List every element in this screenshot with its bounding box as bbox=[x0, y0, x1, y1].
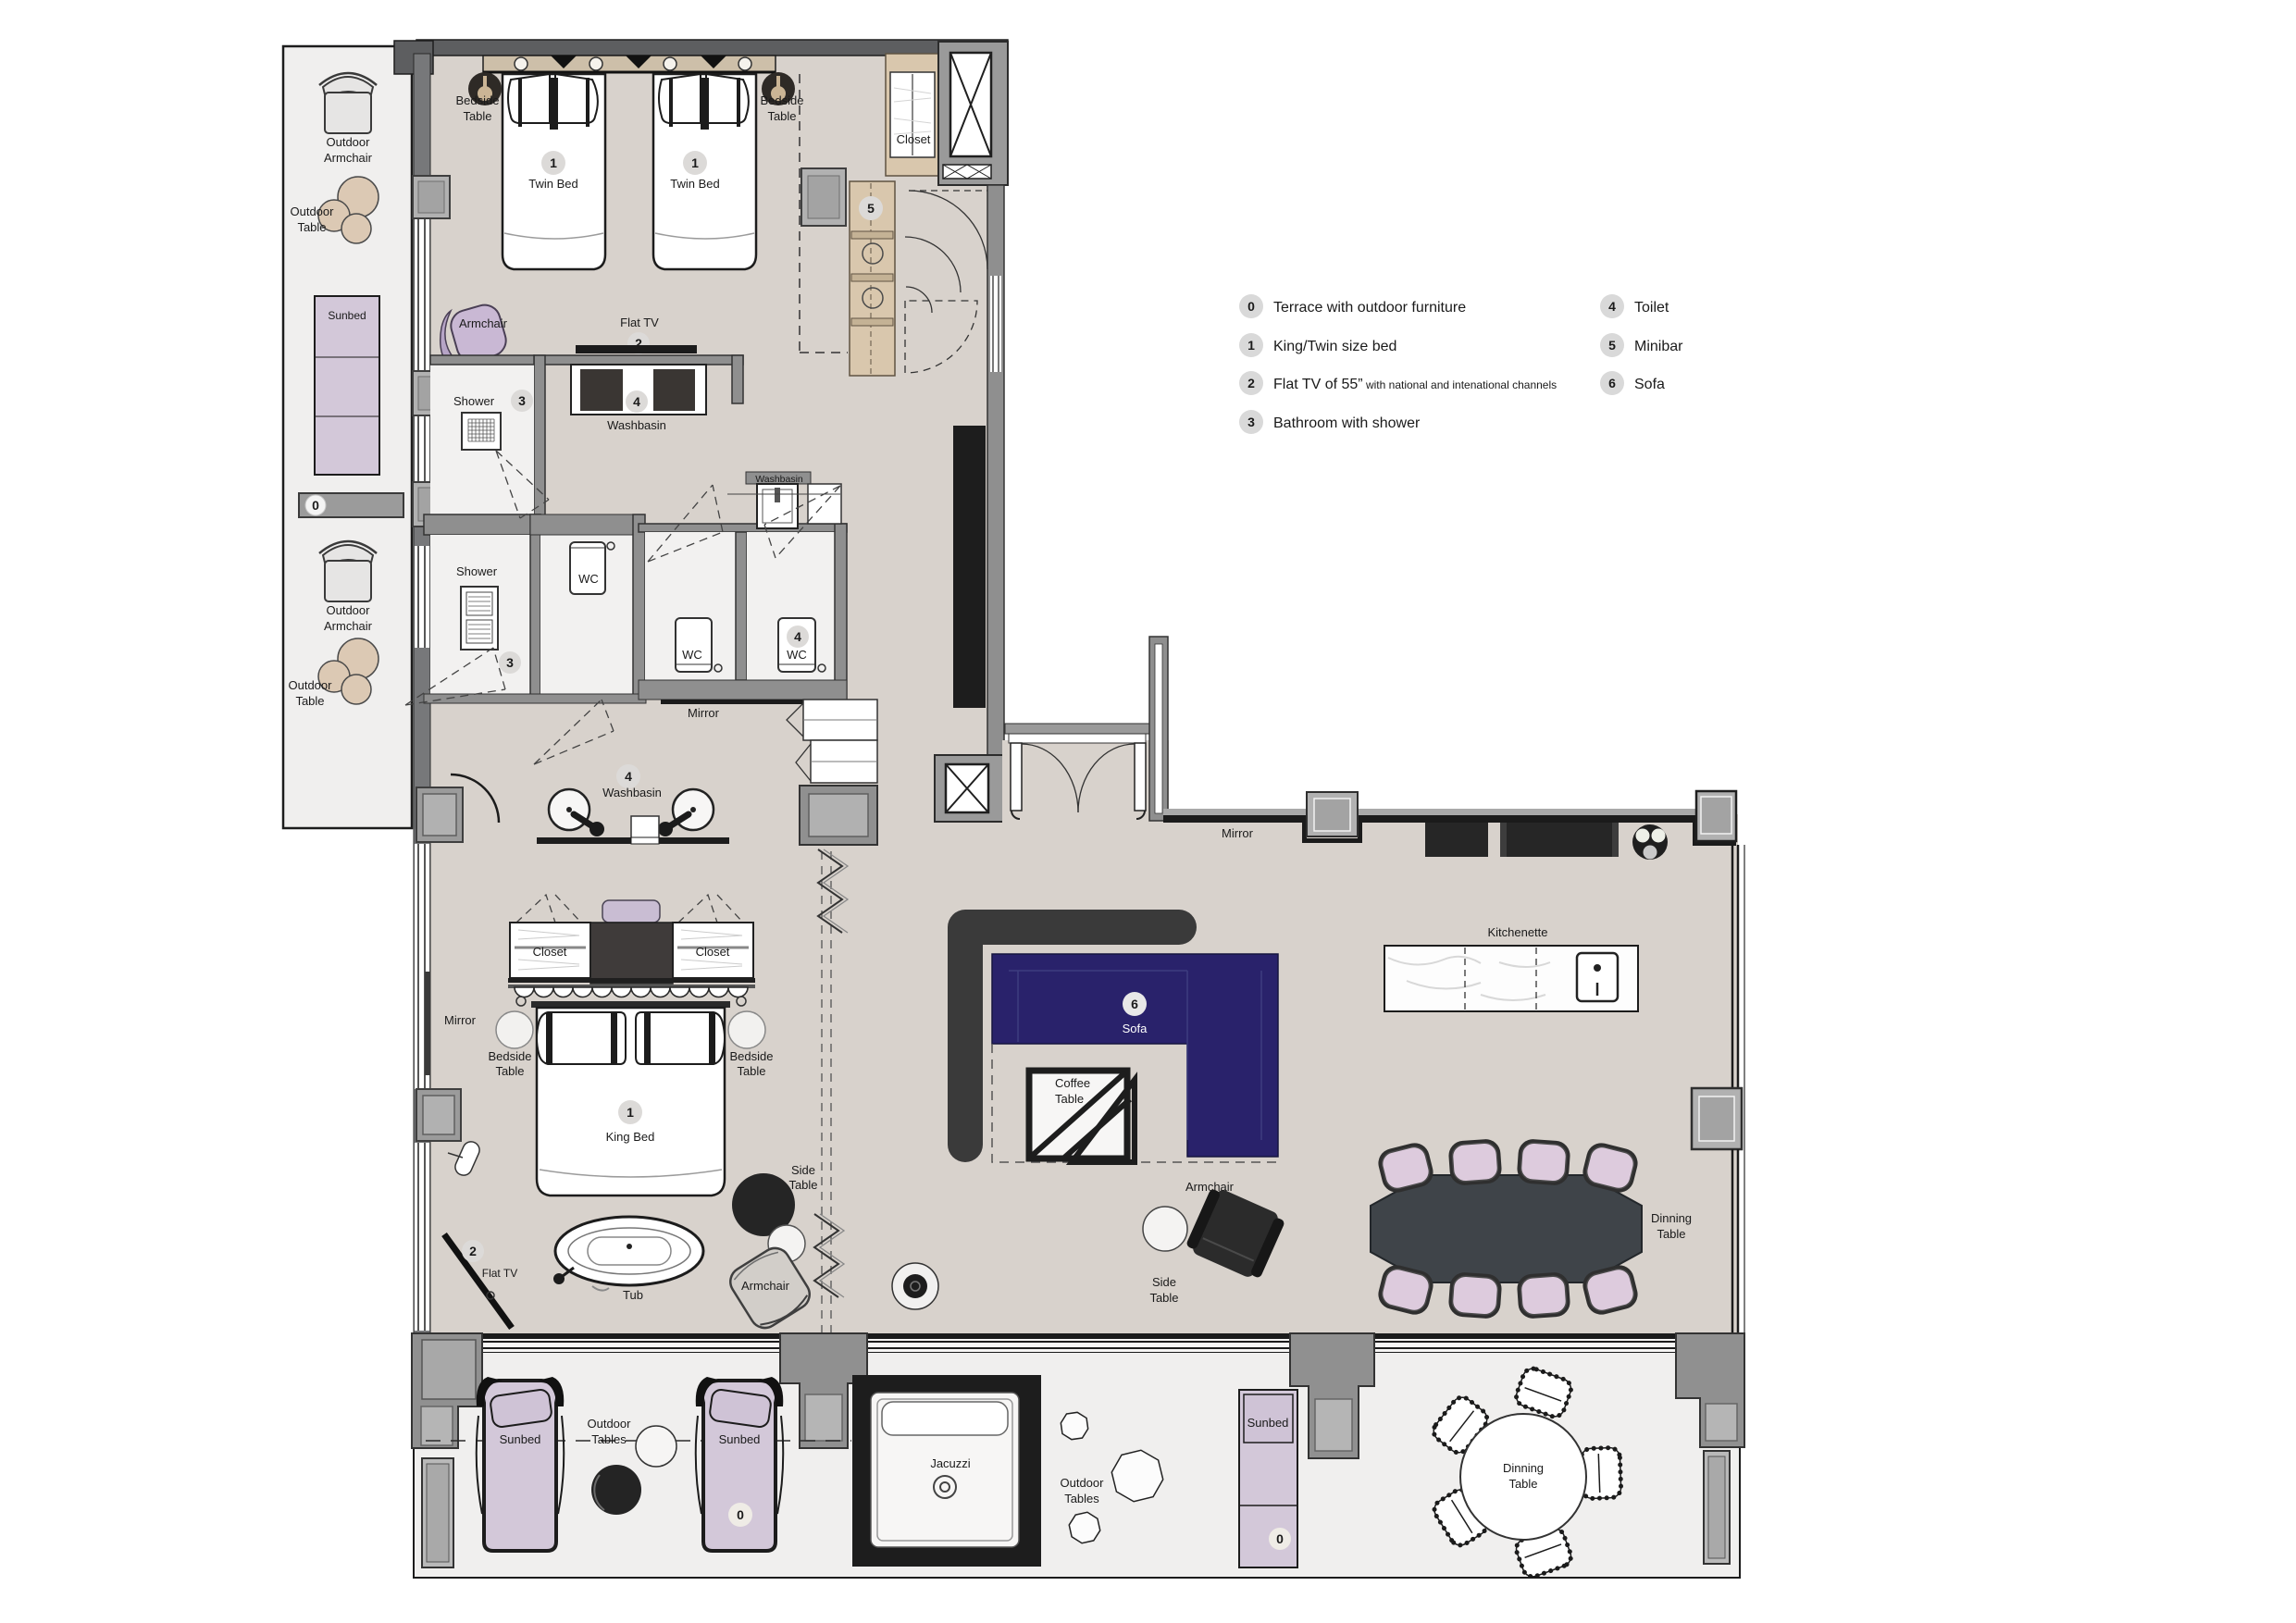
svg-text:Side: Side bbox=[1152, 1275, 1176, 1289]
svg-text:Shower: Shower bbox=[456, 564, 498, 578]
svg-text:Table: Table bbox=[1149, 1291, 1178, 1305]
svg-text:4: 4 bbox=[633, 394, 640, 409]
svg-text:Sunbed: Sunbed bbox=[328, 309, 366, 322]
svg-text:Washbasin: Washbasin bbox=[755, 474, 803, 485]
svg-text:Coffee: Coffee bbox=[1055, 1076, 1090, 1090]
svg-text:WC: WC bbox=[787, 648, 807, 662]
svg-text:Washbasin: Washbasin bbox=[602, 786, 662, 799]
svg-text:Mirror: Mirror bbox=[1222, 826, 1254, 840]
svg-text:4: 4 bbox=[1608, 299, 1616, 314]
svg-text:Twin Bed: Twin Bed bbox=[528, 177, 577, 191]
svg-text:1: 1 bbox=[691, 155, 699, 170]
svg-text:Mirror: Mirror bbox=[688, 706, 720, 720]
svg-text:1: 1 bbox=[1247, 338, 1255, 353]
svg-text:1: 1 bbox=[627, 1105, 634, 1120]
svg-text:Table: Table bbox=[737, 1064, 765, 1078]
svg-text:Tables: Tables bbox=[1064, 1492, 1099, 1505]
svg-text:Armchair: Armchair bbox=[741, 1279, 790, 1293]
svg-text:Terrace with outdoor furniture: Terrace with outdoor furniture bbox=[1273, 300, 1466, 316]
svg-text:Washbasin: Washbasin bbox=[607, 418, 666, 432]
svg-text:Outdoor: Outdoor bbox=[327, 603, 371, 617]
svg-text:Sofa: Sofa bbox=[1123, 1022, 1148, 1035]
svg-text:0: 0 bbox=[1247, 299, 1255, 314]
svg-text:Jacuzzi: Jacuzzi bbox=[930, 1456, 970, 1470]
svg-text:Table: Table bbox=[463, 109, 491, 123]
svg-text:Sunbed: Sunbed bbox=[1247, 1416, 1289, 1430]
svg-text:Bedside: Bedside bbox=[730, 1049, 774, 1063]
svg-text:Outdoor: Outdoor bbox=[588, 1417, 632, 1431]
svg-text:Tub: Tub bbox=[623, 1288, 643, 1302]
svg-text:4: 4 bbox=[625, 769, 632, 784]
svg-text:3: 3 bbox=[518, 393, 526, 408]
svg-text:Closet: Closet bbox=[533, 945, 567, 959]
svg-text:WC: WC bbox=[578, 572, 599, 586]
svg-text:0: 0 bbox=[312, 498, 319, 513]
svg-text:Armchair: Armchair bbox=[324, 619, 373, 633]
svg-text:Toilet: Toilet bbox=[1634, 300, 1669, 316]
svg-text:Sunbed: Sunbed bbox=[500, 1432, 541, 1446]
svg-text:Sunbed: Sunbed bbox=[719, 1432, 761, 1446]
svg-text:Table: Table bbox=[1657, 1227, 1685, 1241]
svg-text:6: 6 bbox=[1131, 997, 1138, 1011]
svg-text:0: 0 bbox=[737, 1507, 744, 1522]
svg-text:Minibar: Minibar bbox=[1634, 339, 1683, 354]
svg-text:Mirror: Mirror bbox=[444, 1013, 477, 1027]
svg-text:Flat TV: Flat TV bbox=[482, 1267, 517, 1280]
svg-text:Kitchenette: Kitchenette bbox=[1487, 925, 1547, 939]
svg-text:Table: Table bbox=[788, 1178, 817, 1192]
svg-text:4: 4 bbox=[794, 629, 801, 644]
svg-text:Outdoor: Outdoor bbox=[289, 678, 333, 692]
svg-text:Bedside: Bedside bbox=[456, 93, 500, 107]
svg-text:0: 0 bbox=[1276, 1531, 1284, 1546]
svg-text:Table: Table bbox=[295, 694, 324, 708]
svg-text:3: 3 bbox=[1247, 415, 1255, 429]
svg-text:2: 2 bbox=[1247, 376, 1255, 390]
svg-text:6: 6 bbox=[1608, 376, 1616, 390]
svg-text:Outdoor: Outdoor bbox=[327, 135, 371, 149]
svg-text:King Bed: King Bed bbox=[606, 1130, 655, 1144]
svg-text:Tables: Tables bbox=[591, 1432, 627, 1446]
svg-text:Bedside: Bedside bbox=[489, 1049, 532, 1063]
svg-text:5: 5 bbox=[867, 201, 875, 216]
svg-text:Dinning: Dinning bbox=[1651, 1211, 1692, 1225]
svg-text:Side: Side bbox=[791, 1163, 815, 1177]
svg-text:Armchair: Armchair bbox=[324, 151, 373, 165]
svg-text:Table: Table bbox=[767, 109, 796, 123]
svg-text:Bedside: Bedside bbox=[761, 93, 804, 107]
svg-text:Table: Table bbox=[1055, 1092, 1084, 1106]
svg-text:Armchair: Armchair bbox=[1185, 1180, 1235, 1194]
svg-text:5: 5 bbox=[1608, 338, 1616, 353]
svg-text:Dinning: Dinning bbox=[1503, 1461, 1544, 1475]
svg-text:Table: Table bbox=[495, 1064, 524, 1078]
svg-text:Closet: Closet bbox=[696, 945, 730, 959]
svg-text:Table: Table bbox=[1508, 1477, 1537, 1491]
svg-text:3: 3 bbox=[506, 655, 514, 670]
svg-text:Outdoor: Outdoor bbox=[1061, 1476, 1105, 1490]
svg-text:Shower: Shower bbox=[453, 394, 495, 408]
svg-text:Closet: Closet bbox=[897, 132, 931, 146]
svg-text:Armchair: Armchair bbox=[459, 316, 508, 330]
svg-text:Sofa: Sofa bbox=[1634, 377, 1665, 392]
svg-text:Outdoor: Outdoor bbox=[291, 204, 335, 218]
svg-text:King/Twin size bed: King/Twin size bed bbox=[1273, 339, 1396, 354]
svg-text:Table: Table bbox=[297, 220, 326, 234]
svg-text:Twin Bed: Twin Bed bbox=[670, 177, 719, 191]
svg-text:1: 1 bbox=[550, 155, 557, 170]
svg-text:Flat TV of 55” with national a: Flat TV of 55” with national and intenat… bbox=[1273, 377, 1557, 392]
svg-text:WC: WC bbox=[682, 648, 702, 662]
svg-text:2: 2 bbox=[469, 1244, 477, 1258]
svg-text:Flat TV: Flat TV bbox=[620, 316, 659, 329]
svg-text:Bathroom with shower: Bathroom with shower bbox=[1273, 415, 1421, 431]
